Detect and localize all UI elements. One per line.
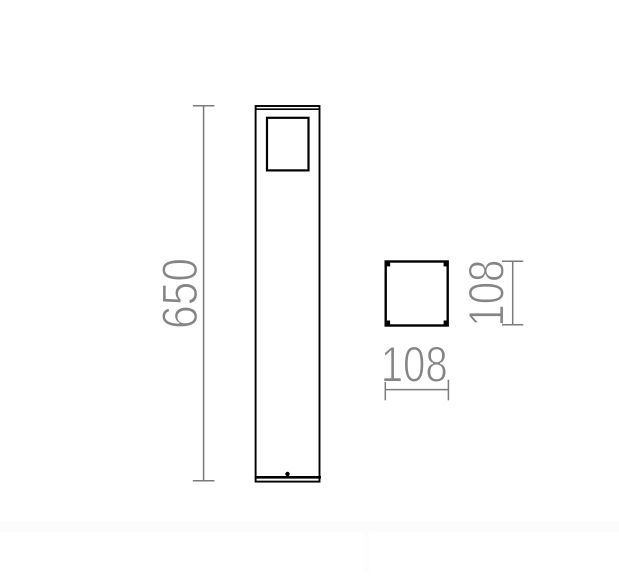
svg-text:108: 108 bbox=[458, 260, 514, 327]
svg-text:650: 650 bbox=[152, 258, 208, 329]
svg-text:108: 108 bbox=[381, 337, 448, 393]
